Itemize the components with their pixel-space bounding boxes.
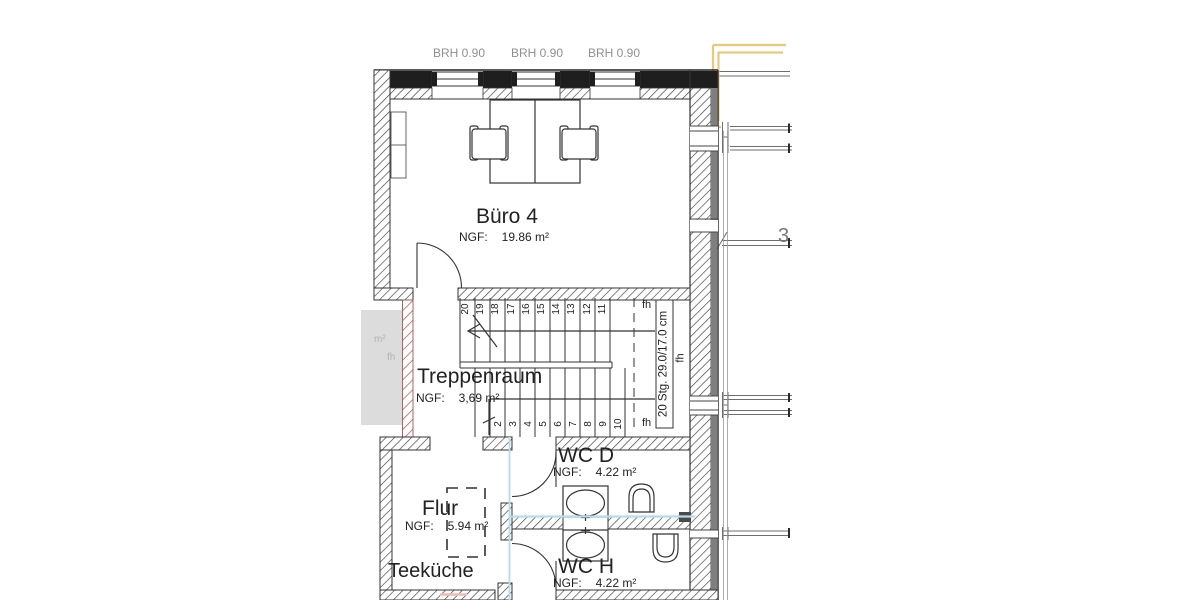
stair-tread-number: 6 bbox=[551, 416, 567, 432]
stair-tread-number: 15 bbox=[534, 301, 550, 317]
buero-door bbox=[417, 243, 462, 288]
stair-tread-number: 3 bbox=[506, 416, 522, 432]
right-wall bbox=[690, 70, 718, 600]
stair-tread-number: 10 bbox=[611, 416, 627, 432]
ngf-value: 4.22 m² bbox=[596, 465, 637, 479]
ngf-label: NGF: bbox=[405, 519, 434, 533]
adjacent-room-gray bbox=[361, 310, 402, 425]
wall-hatch-strip bbox=[374, 88, 690, 99]
grid-axis-label: 3 bbox=[778, 226, 789, 246]
window-sill-label: BRH 0.90 bbox=[588, 47, 640, 59]
stair-tread-number: 11 bbox=[595, 301, 611, 317]
stair-tread-number: 4 bbox=[521, 416, 537, 432]
red-hatched-wall bbox=[403, 300, 414, 437]
stair-tread-number: 19 bbox=[473, 301, 489, 317]
room-name-wc-h: WC H bbox=[558, 556, 614, 577]
stair-tread-number: 16 bbox=[519, 301, 535, 317]
stair-tread-number: 7 bbox=[566, 416, 582, 432]
adjacent-fh-label: fh bbox=[387, 353, 395, 363]
facade-lines bbox=[717, 72, 792, 600]
floorplan-drawing bbox=[0, 0, 1200, 600]
stair-tread-number: 12 bbox=[580, 301, 596, 317]
room-name-flur: Flur bbox=[422, 498, 458, 519]
ngf-value: 3,69 m² bbox=[459, 391, 500, 405]
chair bbox=[560, 126, 598, 160]
room-name-teekueche: Teeküche bbox=[388, 561, 474, 581]
fh-label: fh bbox=[642, 418, 651, 429]
window-sill-label: BRH 0.90 bbox=[511, 47, 563, 59]
stair-tread-number: 17 bbox=[504, 301, 520, 317]
ngf-label: NGF: bbox=[553, 576, 582, 590]
markup-yellow-lines bbox=[713, 45, 786, 128]
bottom-wall bbox=[380, 583, 718, 600]
ngf-label: NGF: bbox=[416, 391, 445, 405]
stair-tread-number: 2 bbox=[491, 416, 507, 432]
room-area-wc-d: NGF:4.22 m² bbox=[553, 466, 636, 478]
stair-tread-number: 13 bbox=[564, 301, 580, 317]
adjacent-area-fragment: m² bbox=[374, 335, 386, 345]
ngf-value: 5.94 m² bbox=[448, 519, 489, 533]
window-sill-label: BRH 0.90 bbox=[433, 47, 485, 59]
floorplan-canvas: BRH 0.90 BRH 0.90 BRH 0.90 Büro 4 NGF:19… bbox=[0, 0, 1200, 600]
top-wall bbox=[374, 70, 718, 99]
stair-tread-number: 9 bbox=[596, 416, 612, 432]
room-area-buero4: NGF:19.86 m² bbox=[459, 231, 549, 243]
fh-label: fh bbox=[676, 353, 687, 362]
wc-partition-wall bbox=[512, 517, 690, 529]
ngf-value: 19.86 m² bbox=[502, 230, 549, 244]
desk-group bbox=[470, 100, 598, 183]
room-name-buero4: Büro 4 bbox=[476, 206, 538, 227]
fh-label: fh bbox=[642, 300, 651, 311]
room-area-wc-h: NGF:4.22 m² bbox=[553, 577, 636, 589]
ngf-value: 4.22 m² bbox=[596, 576, 637, 590]
stair-tread-number: 5 bbox=[536, 416, 552, 432]
ngf-label: NGF: bbox=[553, 465, 582, 479]
room-area-treppenraum: NGF:3,69 m² bbox=[416, 392, 499, 404]
stair-tread-number: 14 bbox=[549, 301, 565, 317]
treppenraum-bottom-wall bbox=[380, 437, 690, 450]
chair bbox=[470, 126, 508, 160]
radiator bbox=[391, 112, 406, 178]
room-name-treppenraum: Treppenraum bbox=[417, 366, 542, 387]
room-name-wc-d: WC D bbox=[558, 445, 614, 466]
windows bbox=[432, 72, 640, 86]
stair-tread-number: 8 bbox=[581, 416, 597, 432]
stair-spec-text: 20 Stg. 29.0/17.0 cm bbox=[658, 311, 670, 417]
stair-tread-number: 20 bbox=[458, 301, 474, 317]
sink bbox=[653, 534, 678, 562]
room-area-flur: NGF:5.94 m² bbox=[405, 520, 488, 532]
sink bbox=[629, 484, 654, 512]
stair-tread-number: 18 bbox=[488, 301, 504, 317]
wc-h-door-arc bbox=[512, 544, 556, 588]
buero4-room bbox=[374, 70, 690, 300]
wc-d-door-arc bbox=[512, 452, 556, 497]
ngf-label: NGF: bbox=[459, 230, 488, 244]
